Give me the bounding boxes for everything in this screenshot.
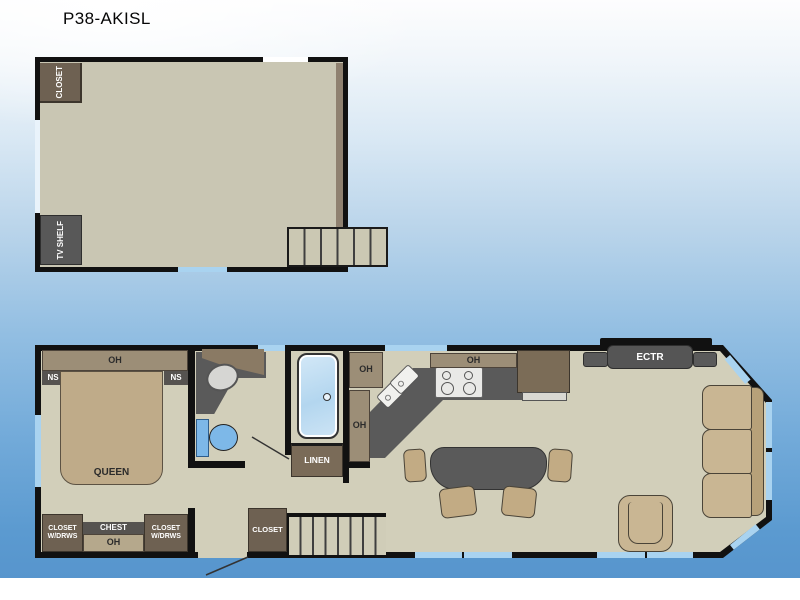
burner [442, 371, 451, 380]
stove [435, 367, 483, 398]
sofa-cushion [702, 473, 752, 518]
entertainment-center: ECTR [607, 345, 693, 369]
bedroom-bath-wall [188, 345, 195, 468]
speaker-right [693, 352, 717, 367]
queen-bed-label: QUEEN [61, 467, 162, 478]
loft-left-window [35, 120, 40, 213]
bathtub [297, 353, 339, 439]
kitchen-oh-corner-label: OH [359, 365, 373, 375]
tub-drain [323, 393, 331, 401]
sink-drain [397, 380, 405, 388]
entry-closet-label: CLOSET [252, 526, 282, 534]
loft-top-window [263, 57, 308, 62]
chest: CHEST [83, 522, 144, 534]
kitchen-top-window [385, 345, 447, 351]
sofa [702, 385, 764, 518]
main-plan: OH NS NS QUEEN CLOSET W/DRWS CHEST OH CL… [35, 345, 772, 558]
island-chair-bottom-left [438, 485, 477, 519]
closet-with-drawers-left: CLOSET W/DRWS [42, 514, 83, 552]
kitchen-overhead-top: OH [430, 353, 517, 368]
nightstand-right: NS [164, 371, 188, 385]
loft-closet-label: CLOSET [56, 66, 65, 98]
kitchen-wall-cap [349, 462, 370, 468]
bedroom-oh-label: OH [108, 356, 122, 366]
bedroom-left-window [35, 415, 41, 487]
bedroom-entry-wall [188, 508, 195, 552]
chest-overhead: OH [83, 534, 144, 552]
linen-closet: LINEN [291, 443, 343, 477]
window-mullion [645, 552, 647, 558]
entry-closet: CLOSET [248, 508, 287, 552]
kitchen-overhead-column: OH [349, 390, 370, 462]
lounge-chair-seat [628, 502, 663, 544]
kitchen-oh-column-label: OH [353, 421, 367, 431]
burner [463, 382, 476, 395]
right-window-1 [766, 402, 772, 448]
sink-drain [384, 394, 392, 402]
entry-door-opening [198, 552, 247, 558]
toilet-tank [196, 419, 209, 457]
loft-bottom-window [178, 267, 227, 272]
burner [464, 371, 473, 380]
island-chair-left [403, 448, 427, 482]
loft-right-wall [336, 63, 343, 238]
ns-left-label: NS [47, 374, 58, 383]
sofa-cushion [702, 429, 752, 474]
refrigerator-door [522, 392, 567, 401]
bath-bottom-wall [190, 461, 245, 468]
toilet-bowl [209, 424, 238, 451]
kitchen-overhead-corner: OH [349, 352, 383, 388]
sofa-cushion [702, 385, 752, 430]
linen-label: LINEN [304, 456, 330, 465]
main-stairs [287, 513, 386, 555]
island-chair-right [547, 448, 573, 483]
bottom-window-2 [597, 552, 693, 558]
bottom-window-1 [415, 552, 512, 558]
closet-with-drawers-right: CLOSET W/DRWS [144, 514, 188, 552]
loft-tv-shelf-label: TV SHELF [57, 221, 66, 260]
closet-left-line1: CLOSET [48, 525, 76, 533]
island-chair-bottom-right [501, 485, 538, 518]
ns-right-label: NS [170, 374, 181, 383]
queen-bed: QUEEN [60, 371, 163, 485]
window-mullion [462, 552, 464, 558]
tub-left-wall [285, 345, 291, 455]
ectr-label: ECTR [636, 352, 663, 363]
lounge-chair [618, 495, 673, 552]
kitchen-island [430, 447, 547, 490]
chest-oh-label: OH [107, 538, 121, 548]
right-window-2 [766, 452, 772, 500]
chest-label: CHEST [100, 524, 127, 533]
loft-stairs [287, 227, 388, 267]
closet-left-line2: W/DRWS [48, 533, 78, 541]
loft-tv-shelf: TV SHELF [40, 215, 82, 265]
speaker-left [583, 352, 608, 367]
closet-right-line1: CLOSET [152, 525, 180, 533]
loft-closet: CLOSET [40, 63, 82, 103]
kitchen-oh-top-label: OH [467, 356, 481, 366]
closet-right-line2: W/DRWS [151, 533, 181, 541]
floorplan-title: P38-AKISL [63, 9, 151, 29]
bedroom-overhead-cabinet: OH [42, 350, 188, 371]
refrigerator [517, 350, 570, 393]
burner [441, 382, 454, 395]
